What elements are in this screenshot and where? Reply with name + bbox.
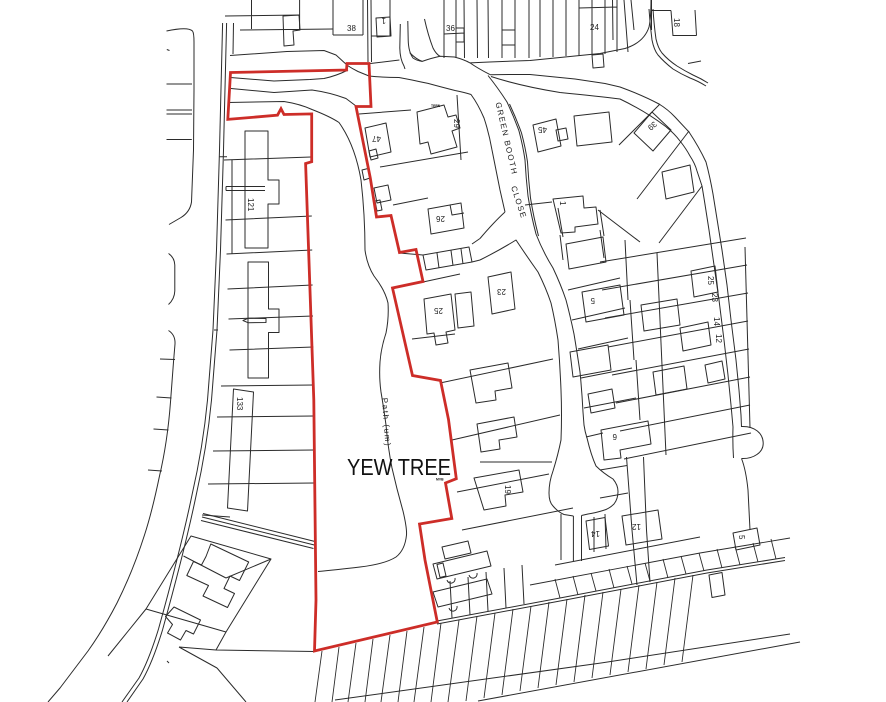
svg-text:YEW TREE: YEW TREE <box>347 454 451 480</box>
svg-text:25: 25 <box>434 306 443 315</box>
svg-text:38: 38 <box>347 24 356 33</box>
svg-text:14: 14 <box>591 529 600 538</box>
svg-text:5: 5 <box>737 535 746 540</box>
svg-text:23: 23 <box>497 287 506 296</box>
svg-text:23: 23 <box>710 293 719 302</box>
svg-text:14: 14 <box>712 317 721 326</box>
svg-text:45: 45 <box>538 125 547 134</box>
svg-text:MVB: MVB <box>436 478 444 482</box>
svg-text:6: 6 <box>612 432 617 441</box>
svg-text:24: 24 <box>590 23 599 32</box>
svg-text:12: 12 <box>714 334 723 343</box>
svg-text:12: 12 <box>632 522 641 531</box>
svg-text:1: 1 <box>558 201 567 206</box>
svg-text:TERN: TERN <box>431 104 441 108</box>
svg-text:5: 5 <box>590 296 595 305</box>
svg-text:26: 26 <box>436 214 445 223</box>
svg-text:25: 25 <box>706 276 715 285</box>
svg-text:19: 19 <box>503 485 512 494</box>
svg-text:47: 47 <box>372 134 381 143</box>
svg-text:121: 121 <box>246 198 255 212</box>
svg-text:18: 18 <box>672 18 681 27</box>
svg-text:133: 133 <box>235 397 244 411</box>
svg-text:36: 36 <box>446 24 455 33</box>
svg-text:1: 1 <box>381 16 386 25</box>
svg-text:29: 29 <box>452 119 461 128</box>
